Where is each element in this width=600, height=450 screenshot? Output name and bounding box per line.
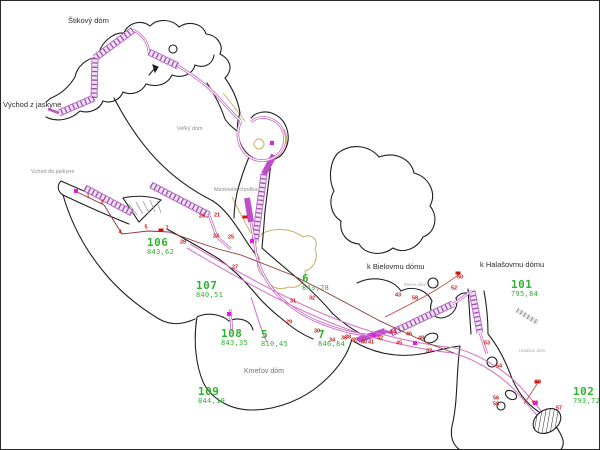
survey-point-number: 41 — [368, 340, 374, 346]
station-elevation: 843,35 — [221, 340, 248, 347]
survey-point-number: 37 — [426, 349, 432, 355]
passage-label: Bielov dóm — [404, 283, 426, 288]
survey-point-number: 38 — [345, 335, 351, 341]
station-elevation: 843,62 — [147, 249, 174, 256]
survey-marker-red — [159, 229, 164, 232]
passage-label: k Halašovmu dómu — [480, 261, 544, 269]
survey-point-number: 58 — [412, 296, 418, 302]
station-elevation: 795,84 — [511, 291, 538, 298]
station-label: 107840,51 — [196, 280, 223, 299]
station-label: 108843,35 — [221, 328, 248, 347]
station-elevation: 793,72 — [573, 398, 600, 405]
survey-point-number: 45 — [396, 341, 402, 347]
station-label: 106843,62 — [147, 237, 174, 256]
station-number: 107 — [196, 280, 223, 291]
survey-point-number: 55 — [493, 402, 499, 408]
survey-point-number: 32 — [309, 296, 315, 302]
station-number: 108 — [221, 328, 248, 339]
survey-point-number: 34 — [329, 338, 335, 344]
station-label: 109844,19 — [198, 386, 225, 405]
station-label: 102793,72 — [573, 386, 600, 405]
survey-point-number: 25 — [228, 235, 234, 241]
survey-point-number: 40 — [361, 340, 367, 346]
survey-marker-magenta — [533, 401, 537, 405]
survey-point-number: 57 — [556, 406, 562, 412]
survey-point-number: 46 — [406, 332, 412, 338]
station-elevation: 840,51 — [196, 292, 223, 299]
survey-point-number: 39 — [352, 338, 358, 344]
cave-map: Štikový dómVýchod z jaskyneVchod do jask… — [0, 0, 600, 450]
survey-point-number: 29 — [286, 320, 292, 326]
survey-point-number: 3 — [100, 200, 103, 206]
survey-marker-red — [456, 272, 461, 275]
station-label: 5810,45 — [261, 329, 288, 348]
survey-point-number: 7 — [165, 226, 168, 232]
passage-label: Štikový dóm — [68, 17, 109, 25]
station-elevation: 844,19 — [198, 398, 225, 405]
passage-label: Vchod do jaskyne — [31, 170, 74, 176]
station-label: 101795,84 — [511, 279, 538, 298]
survey-point-number: 24 — [213, 234, 219, 240]
station-number: 5 — [261, 329, 288, 340]
survey-point-number: 48 — [418, 336, 424, 342]
station-elevation: 810,45 — [261, 341, 288, 348]
survey-point-number: 52 — [451, 286, 457, 292]
survey-point-number: 43 — [395, 293, 401, 299]
survey-point-number: 4 — [118, 230, 121, 236]
station-elevation: 843,28 — [302, 285, 329, 292]
station-number: 101 — [511, 279, 538, 290]
survey-marker-magenta — [74, 189, 78, 193]
survey-marker-magenta — [270, 141, 274, 145]
survey-point-number: 5 — [144, 225, 147, 231]
survey-marker-red — [243, 216, 248, 219]
survey-marker-red — [535, 381, 540, 384]
survey-point-number: 44 — [390, 330, 396, 336]
survey-marker-magenta — [372, 333, 376, 337]
survey-point-number: 54 — [496, 364, 502, 370]
survey-point-number: 42 — [377, 336, 383, 342]
survey-marker-magenta — [413, 341, 417, 345]
station-number: 102 — [573, 386, 600, 397]
survey-point-number: 53 — [484, 341, 490, 347]
survey-point-number: 28 — [180, 240, 186, 246]
survey-point-number: 26 — [199, 214, 205, 220]
station-number: 106 — [147, 237, 174, 248]
station-number: 109 — [198, 386, 225, 397]
passage-label: Východ z jaskyne — [3, 101, 61, 109]
survey-point-number: 56 — [493, 396, 499, 402]
map-label-overlay: Štikový dómVýchod z jaskyneVchod do jask… — [1, 1, 600, 450]
survey-marker-magenta — [227, 312, 231, 316]
survey-point-number: 30 — [314, 329, 320, 335]
survey-point-number: 31 — [290, 299, 296, 305]
passage-label: Medvedia chodba — [214, 188, 257, 194]
survey-point-number: 21 — [214, 213, 220, 219]
passage-label: Veľký dóm — [177, 127, 203, 133]
station-number: 6 — [302, 273, 329, 284]
passage-label: k Bielovmu dómu — [367, 263, 425, 271]
station-label: 6843,28 — [302, 273, 329, 292]
survey-point-number: 1 — [86, 194, 89, 200]
passage-label: Kmeťov dóm — [244, 368, 284, 375]
survey-point-number: 27 — [232, 265, 238, 271]
survey-point-number: 50 — [457, 275, 463, 281]
survey-marker-magenta — [250, 239, 254, 243]
passage-label: Halašov dóm — [519, 349, 545, 354]
